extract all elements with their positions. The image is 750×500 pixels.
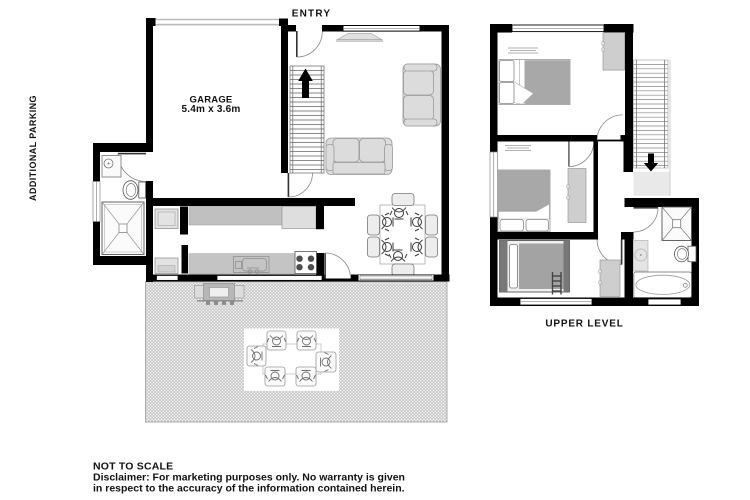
svg-text:in respect to the accuracy of: in respect to the accuracy of the inform… bbox=[93, 483, 405, 495]
svg-text:5.4m x 3.6m: 5.4m x 3.6m bbox=[182, 104, 241, 115]
svg-text:ADDITIONAL PARKING: ADDITIONAL PARKING bbox=[28, 95, 38, 201]
svg-text:ENTRY: ENTRY bbox=[292, 9, 332, 20]
svg-text:UPPER LEVEL: UPPER LEVEL bbox=[545, 319, 623, 330]
